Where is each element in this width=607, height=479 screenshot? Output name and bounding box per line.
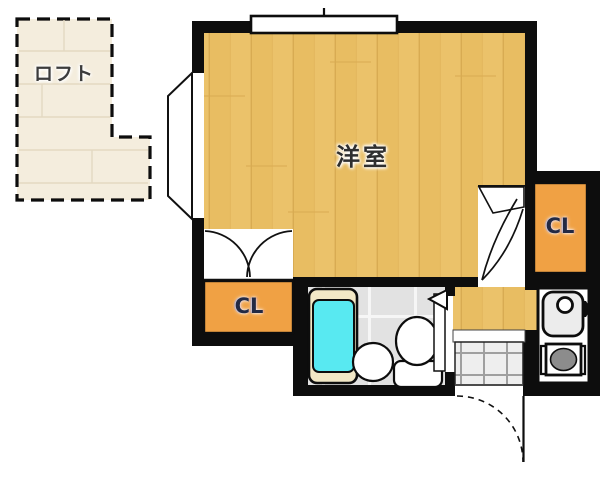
entrance-step [453,330,525,342]
loft-outline [17,19,150,200]
bay-window [168,73,192,219]
double-closet-door [204,229,293,280]
washbasin [353,343,393,381]
loft-area [17,19,150,200]
bathtub [309,289,357,383]
entrance [453,330,525,462]
closet-right [534,183,587,273]
genkan-tile-floor [455,342,523,385]
stove-burner [541,344,585,375]
kitchen [538,288,591,383]
closet-left [204,281,293,333]
hallway-floor [453,287,537,332]
window [251,8,397,33]
entrance-door-swing-arc [457,396,523,462]
entrance-opening [455,384,523,396]
bathroom [308,287,447,387]
room-door [478,185,525,283]
floor-plan: ロフト 洋室 CL CL [0,0,607,479]
kitchen-sink [543,292,591,336]
floor-plan-drawing [0,0,607,479]
